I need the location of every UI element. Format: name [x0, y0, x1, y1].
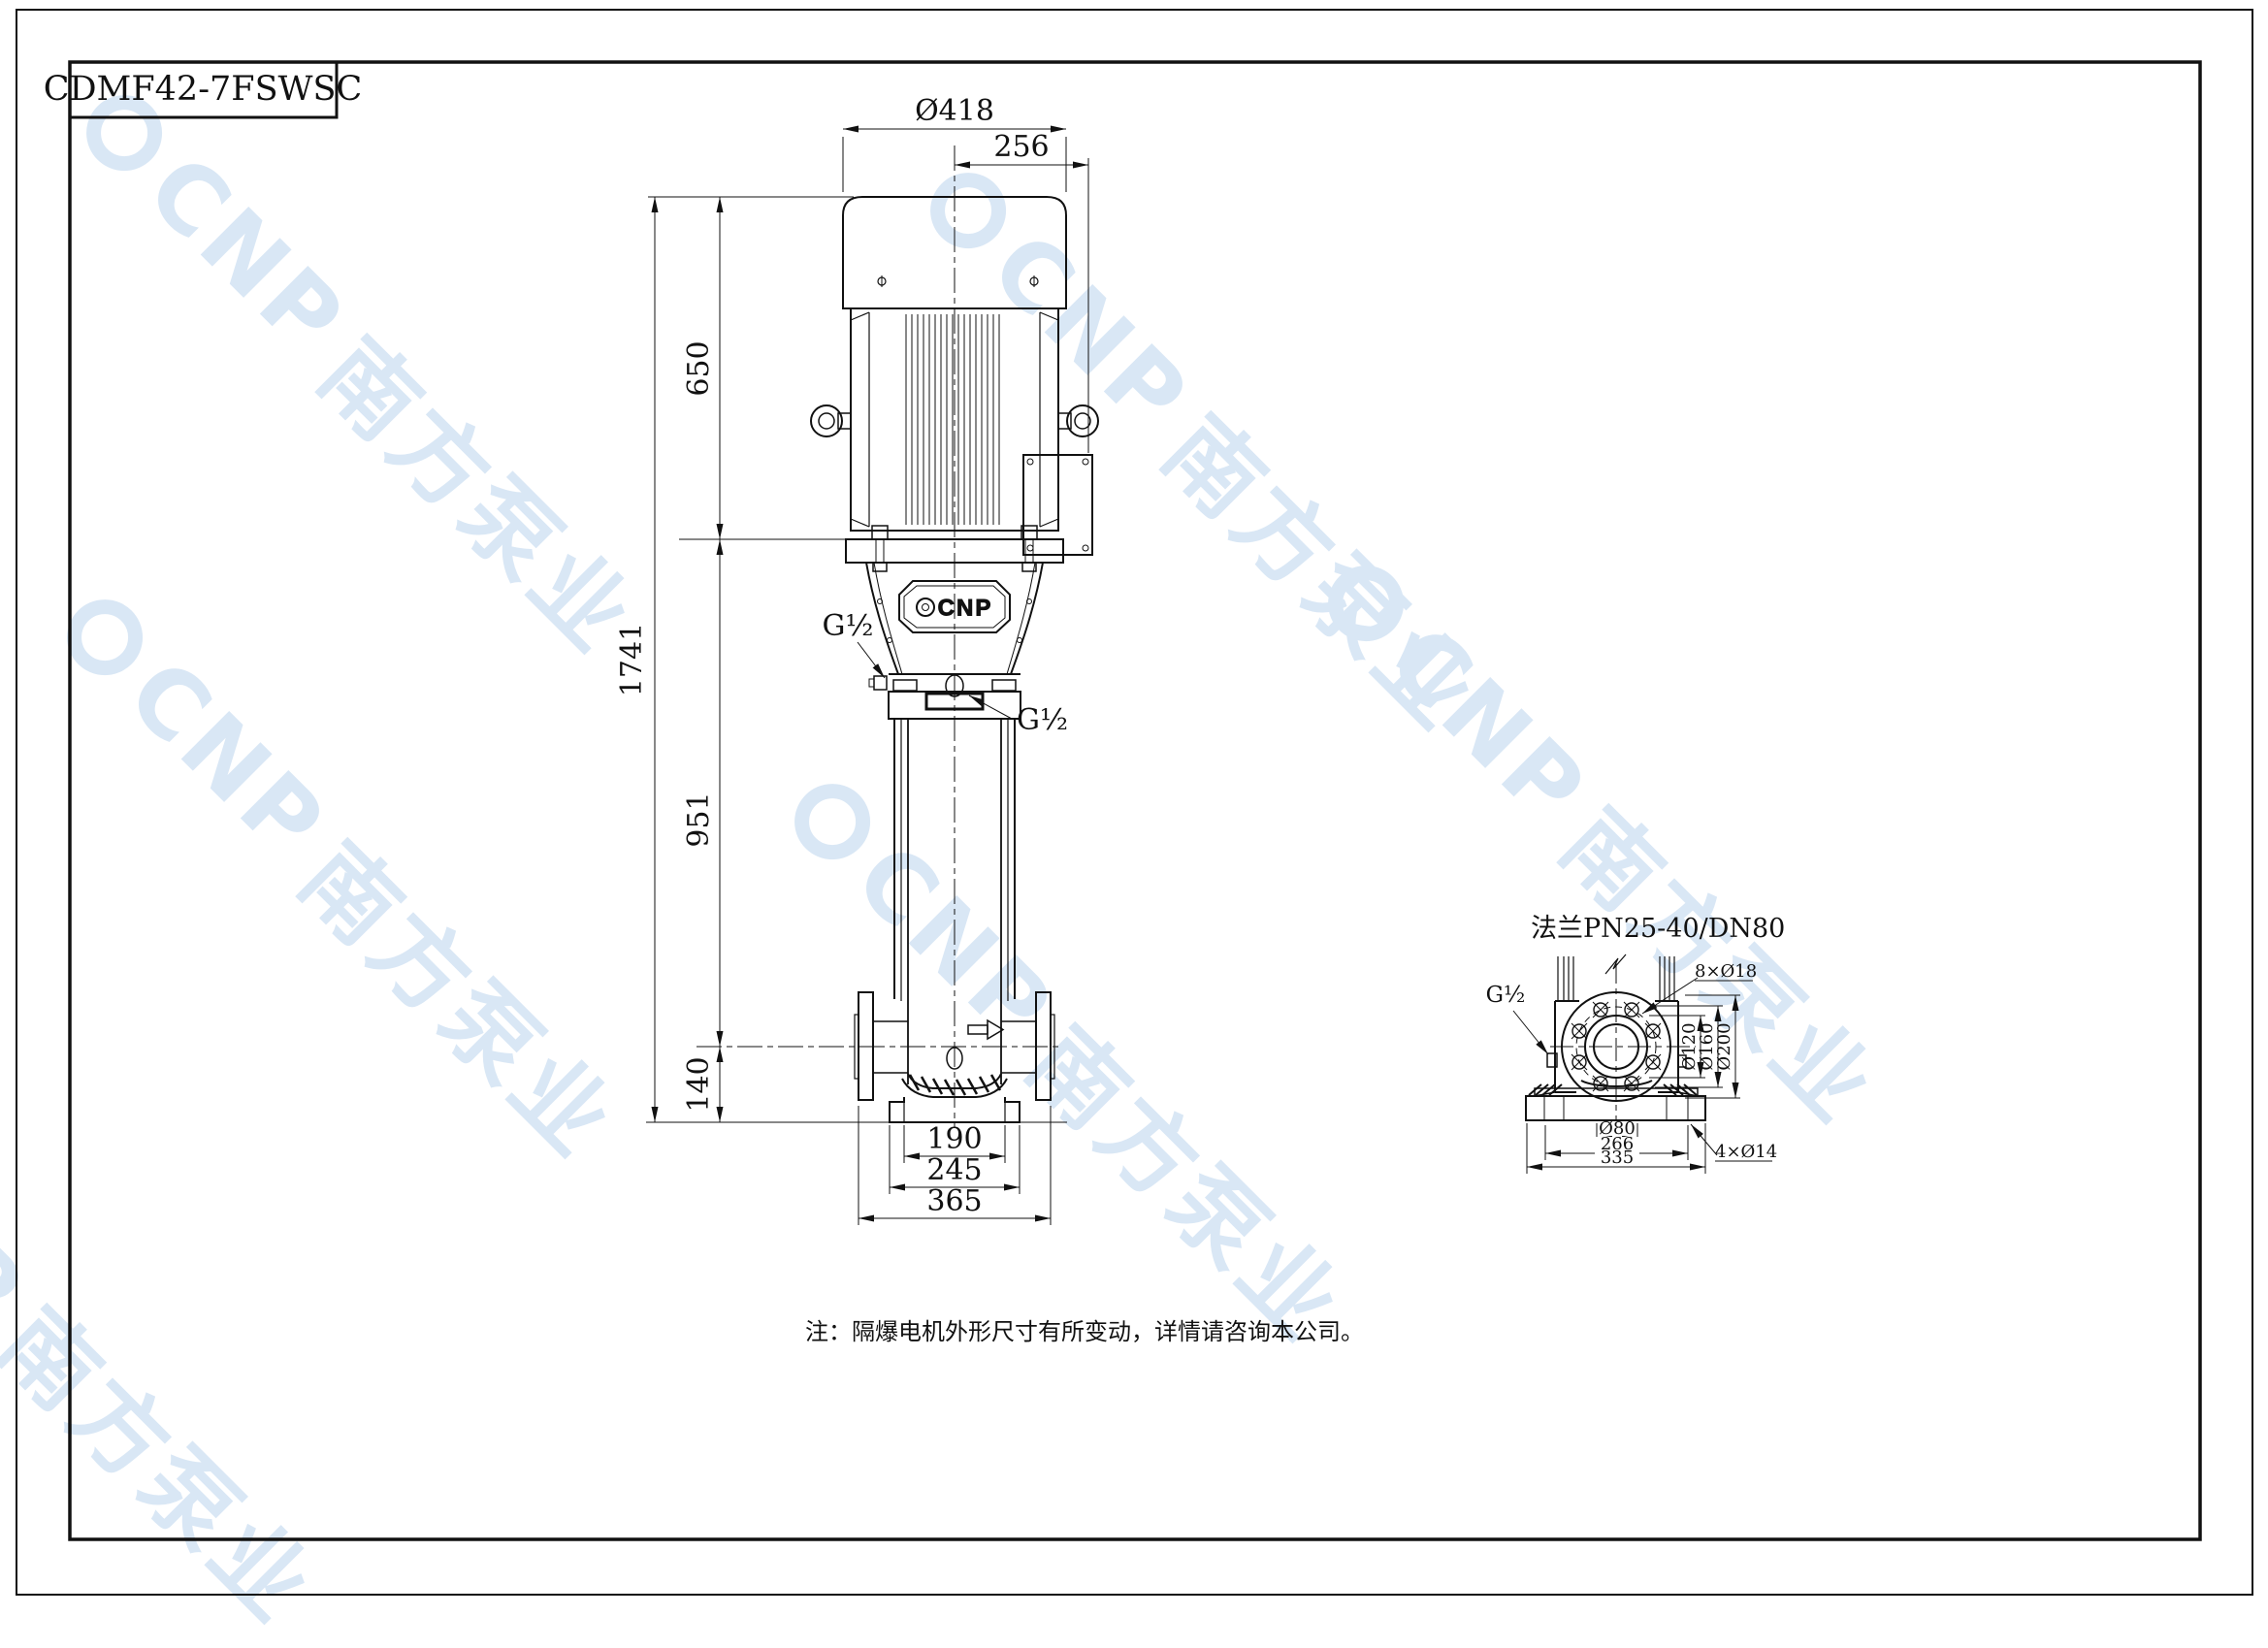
- dim-total-height: 1741: [615, 623, 649, 696]
- port-label-left: G½: [822, 609, 873, 643]
- dim-w335: 335: [1601, 1147, 1634, 1168]
- dim-motor-height: 650: [682, 340, 716, 396]
- dim-base-height: 140: [682, 1056, 716, 1112]
- flange-port-label: G½: [1486, 983, 1526, 1008]
- cnp-logo-icon: [917, 598, 934, 616]
- dim-bolt-holes: 8×Ø18: [1695, 961, 1757, 982]
- lifting-eye-left: [811, 405, 851, 436]
- flow-arrow-icon: [968, 1025, 988, 1034]
- dim-feet-holes: 4×Ø14: [1715, 1142, 1777, 1162]
- lifting-eye-right: [1058, 405, 1098, 436]
- dim-top-offset: 256: [993, 130, 1049, 164]
- drawing-canvas: CDMF42-7FSWSC: [0, 0, 2268, 1603]
- drawing-note: 注：隔爆电机外形尺寸有所变动，详情请咨询本公司。: [805, 1318, 1364, 1345]
- flange-view-title: 法兰PN25-40/DN80: [1531, 914, 1785, 944]
- dim-foot-width: 190: [926, 1122, 982, 1156]
- port-label-right: G½: [1017, 703, 1068, 737]
- cnp-nameplate-text: CNP: [938, 596, 993, 622]
- dim-base-width: 245: [926, 1153, 982, 1187]
- dim-d200: Ø200: [1714, 1022, 1734, 1070]
- model-number: CDMF42-7FSWSC: [44, 70, 363, 109]
- pump-head: [869, 674, 1021, 719]
- dim-flange-width: 365: [926, 1184, 982, 1218]
- dim-pump-height: 951: [682, 792, 716, 847]
- pump-front-view: [697, 145, 1098, 1127]
- motor-cooling-fins: [906, 314, 999, 525]
- sheet-border: [16, 10, 2252, 1595]
- drawing-sheet: { "title_block": { "model": "CDMF42-7FSW…: [0, 0, 2268, 1603]
- gas-port-boss-left: [874, 676, 887, 690]
- dim-top-diameter: Ø418: [915, 94, 994, 128]
